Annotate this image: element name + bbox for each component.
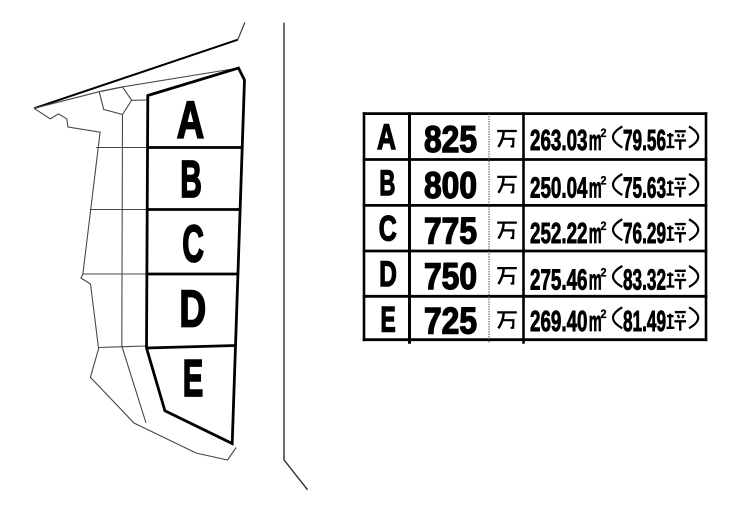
svg-text:2: 2 (601, 221, 607, 233)
svg-text:250.04: 250.04 (530, 173, 588, 205)
svg-text:81.49: 81.49 (623, 306, 666, 338)
svg-text:E: E (183, 349, 204, 407)
svg-text:775: 775 (424, 211, 477, 252)
svg-text:269.40: 269.40 (530, 306, 588, 338)
svg-text:750: 750 (424, 256, 477, 297)
svg-text:B: B (180, 150, 202, 208)
svg-text:263.03: 263.03 (530, 125, 588, 157)
svg-text:2: 2 (601, 176, 607, 188)
svg-text:E: E (381, 300, 396, 339)
svg-text:C: C (379, 210, 397, 249)
svg-text:275.46: 275.46 (530, 265, 588, 297)
svg-text:2: 2 (601, 309, 607, 321)
svg-text:800: 800 (424, 165, 477, 206)
svg-text:D: D (179, 279, 206, 337)
svg-text:A: A (177, 91, 204, 149)
svg-text:76.29: 76.29 (623, 218, 666, 250)
svg-text:79.56: 79.56 (623, 125, 666, 157)
svg-text:B: B (379, 164, 395, 203)
svg-text:252.22: 252.22 (530, 218, 588, 250)
svg-text:C: C (182, 214, 204, 272)
svg-text:2: 2 (601, 268, 607, 280)
svg-text:83.32: 83.32 (623, 265, 666, 297)
svg-text:D: D (379, 255, 397, 294)
svg-text:825: 825 (424, 119, 477, 160)
svg-text:75.63: 75.63 (623, 173, 666, 205)
svg-text:2: 2 (601, 128, 607, 140)
svg-text:725: 725 (424, 301, 477, 342)
svg-text:A: A (377, 118, 396, 157)
